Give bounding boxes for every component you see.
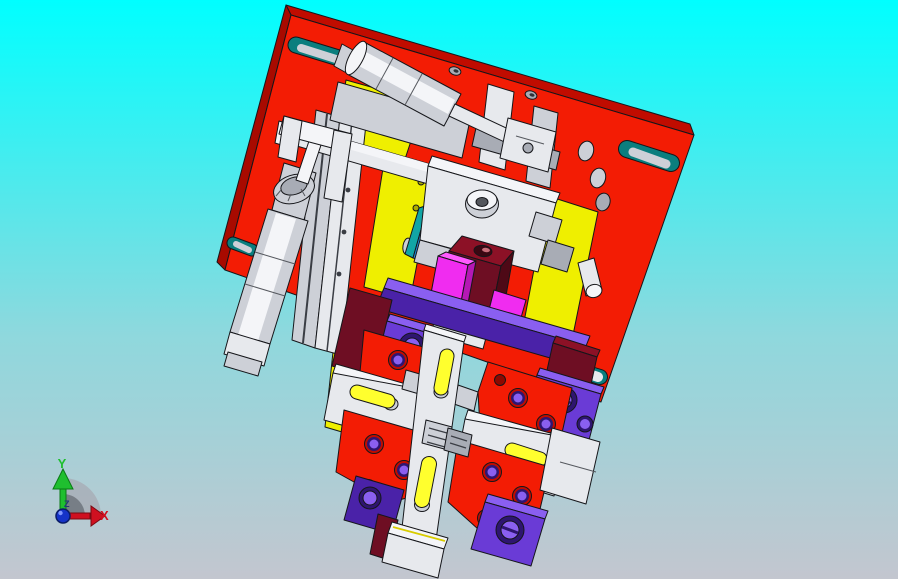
axis-x-label: X — [100, 508, 109, 523]
purple-screw — [509, 389, 528, 408]
bracket-boss — [466, 190, 499, 218]
purple-screw — [389, 351, 408, 370]
cad-viewport[interactable]: Y X Z — [0, 0, 898, 579]
origin-sphere — [56, 509, 70, 523]
cad-scene: Y X Z — [0, 0, 898, 579]
purple-screw — [365, 435, 384, 454]
axis-z-label: Z — [64, 499, 70, 509]
axis-y-label: Y — [58, 456, 67, 471]
orientation-triad: Y X Z — [53, 456, 109, 526]
purple-screw — [483, 463, 502, 482]
base-plate-slot — [233, 243, 252, 250]
